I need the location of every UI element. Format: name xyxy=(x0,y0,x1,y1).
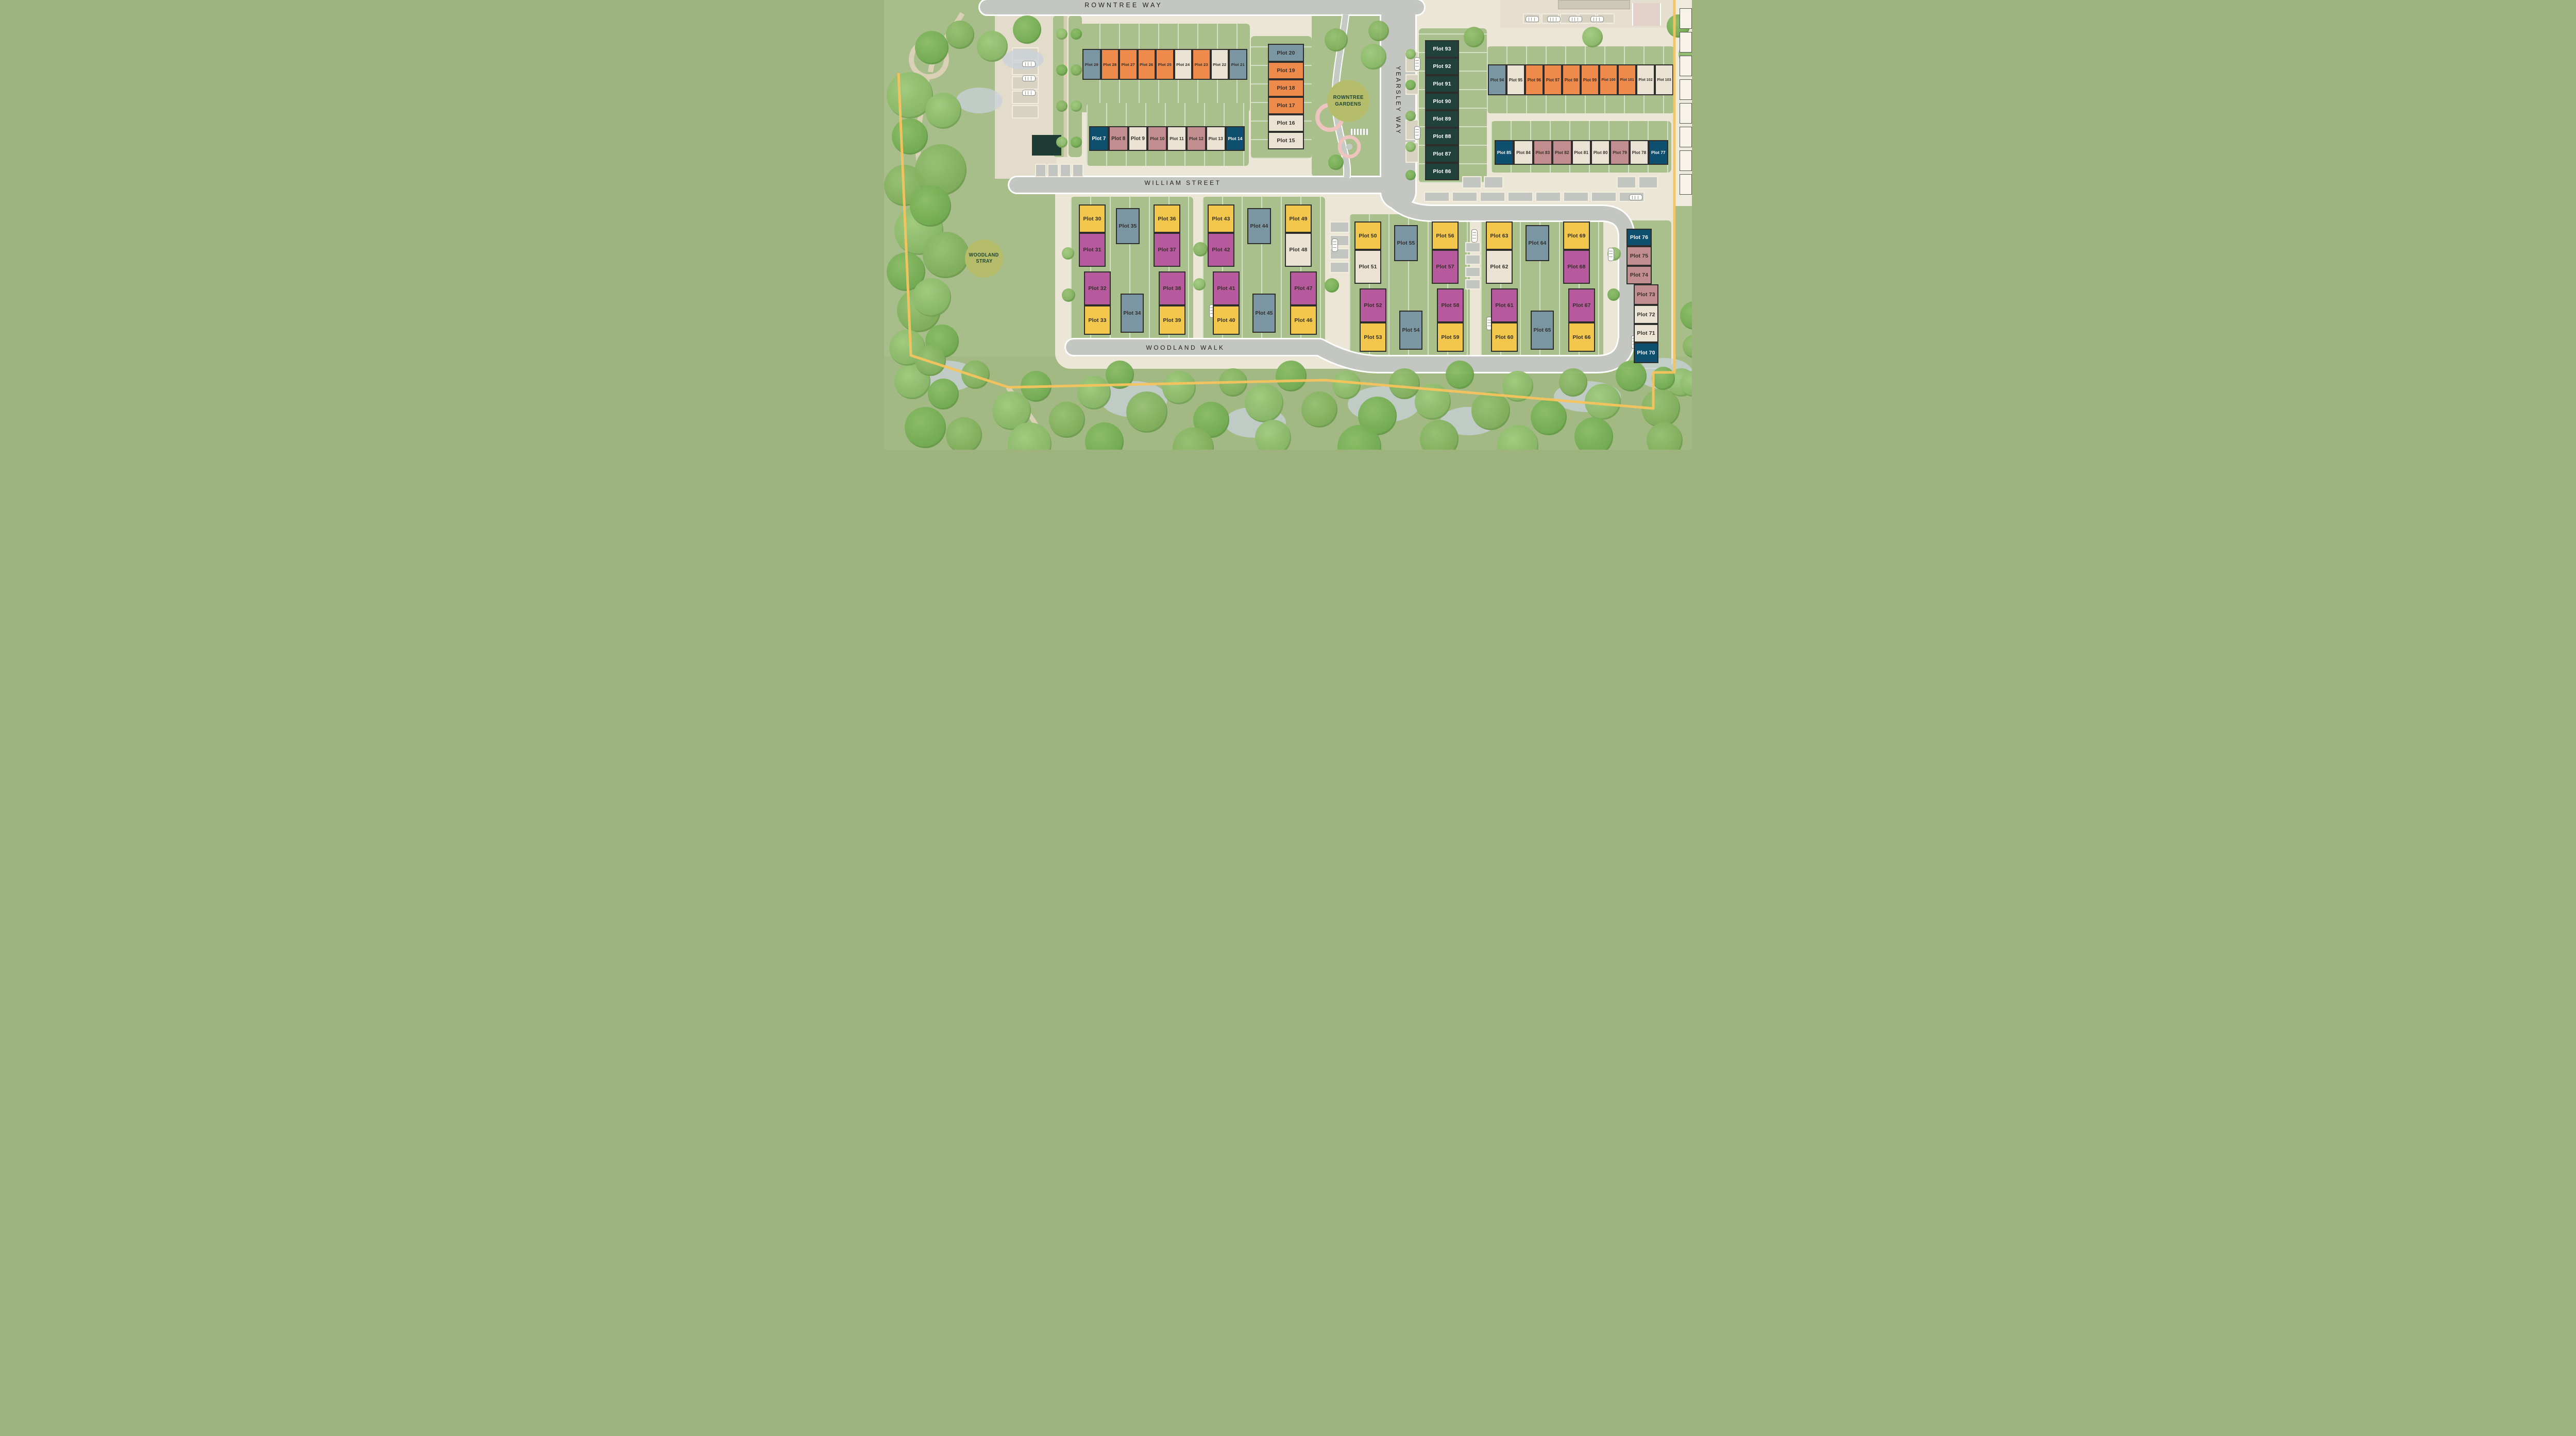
plot-15[interactable]: Plot 15 xyxy=(1268,132,1304,149)
plot-91[interactable]: Plot 91 xyxy=(1425,75,1459,93)
parking-stall xyxy=(1480,192,1505,202)
woodland-stray-badge: WOODLAND STRAY xyxy=(965,240,1003,278)
plot-54[interactable]: Plot 54 xyxy=(1399,311,1422,350)
plot-10[interactable]: Plot 10 xyxy=(1147,126,1167,151)
plot-73[interactable]: Plot 73 xyxy=(1634,284,1658,305)
plot-70-label: Plot 70 xyxy=(1637,350,1655,356)
car-icon xyxy=(1332,238,1338,252)
plot-28-label: Plot 28 xyxy=(1103,62,1116,67)
tree xyxy=(923,232,969,278)
offsite-house xyxy=(1680,150,1692,171)
tree xyxy=(925,93,961,129)
plot-78-label: Plot 78 xyxy=(1632,150,1647,155)
plot-34[interactable]: Plot 34 xyxy=(1121,294,1144,333)
plot-36[interactable]: Plot 36 xyxy=(1154,204,1180,233)
plot-42-label: Plot 42 xyxy=(1212,247,1230,253)
tree xyxy=(1013,15,1041,44)
plot-69-label: Plot 69 xyxy=(1567,233,1585,239)
plot-14[interactable]: Plot 14 xyxy=(1226,126,1245,151)
plot-16[interactable]: Plot 16 xyxy=(1268,114,1304,132)
street-label-william-street: WILLIAM STREET xyxy=(1116,179,1250,186)
tree xyxy=(1077,376,1111,409)
plot-37-label: Plot 37 xyxy=(1158,247,1176,253)
tree xyxy=(1405,170,1416,180)
car-icon xyxy=(1022,75,1036,81)
plot-76[interactable]: Plot 76 xyxy=(1626,229,1652,246)
plot-98-label: Plot 98 xyxy=(1565,78,1579,82)
tree xyxy=(1056,100,1067,112)
tree xyxy=(1056,28,1067,40)
plot-93[interactable]: Plot 93 xyxy=(1425,40,1459,58)
tree xyxy=(1071,28,1082,40)
tree xyxy=(1502,371,1533,402)
car-icon xyxy=(1022,61,1036,67)
plot-74-label: Plot 74 xyxy=(1630,272,1648,278)
car-icon xyxy=(1471,229,1478,243)
plot-44-label: Plot 44 xyxy=(1250,224,1268,229)
plot-25-label: Plot 25 xyxy=(1158,62,1172,67)
plot-80-label: Plot 80 xyxy=(1594,150,1608,155)
woodland-stray-label-line1: WOODLAND xyxy=(969,252,999,259)
plot-98[interactable]: Plot 98 xyxy=(1562,64,1581,95)
tree xyxy=(1301,391,1337,428)
plot-95[interactable]: Plot 95 xyxy=(1506,64,1525,95)
tree xyxy=(1405,80,1416,90)
plot-33-label: Plot 33 xyxy=(1088,317,1106,323)
tree xyxy=(1405,142,1416,152)
tree xyxy=(915,345,946,376)
parking-stall xyxy=(1563,192,1589,202)
plot-90-label: Plot 90 xyxy=(1433,98,1451,105)
plot-94-label: Plot 94 xyxy=(1490,78,1504,82)
plot-52[interactable]: Plot 52 xyxy=(1360,288,1386,322)
plot-79[interactable]: Plot 79 xyxy=(1610,140,1629,165)
tree xyxy=(1193,278,1206,290)
tree xyxy=(1328,155,1344,170)
tree xyxy=(1056,64,1067,76)
plot-96[interactable]: Plot 96 xyxy=(1525,64,1544,95)
car-icon xyxy=(1569,16,1582,22)
plot-32[interactable]: Plot 32 xyxy=(1084,271,1111,305)
plot-100-label: Plot 100 xyxy=(1601,78,1615,82)
plot-43[interactable]: Plot 43 xyxy=(1208,204,1234,233)
tree xyxy=(1652,367,1675,390)
parking-stall xyxy=(1330,262,1349,273)
tree xyxy=(977,31,1008,62)
plot-21[interactable]: Plot 21 xyxy=(1229,49,1247,80)
car-icon xyxy=(1414,126,1420,140)
plot-40[interactable]: Plot 40 xyxy=(1213,305,1240,335)
tree xyxy=(1056,136,1067,148)
plot-43-label: Plot 43 xyxy=(1212,216,1230,222)
plot-69[interactable]: Plot 69 xyxy=(1563,221,1590,250)
plot-97[interactable]: Plot 97 xyxy=(1544,64,1562,95)
plot-76-label: Plot 76 xyxy=(1630,234,1648,241)
plot-12[interactable]: Plot 12 xyxy=(1187,126,1206,151)
plot-66-label: Plot 66 xyxy=(1572,334,1590,340)
offsite-house xyxy=(1680,79,1692,100)
plot-101-label: Plot 101 xyxy=(1620,78,1634,82)
plot-67-label: Plot 67 xyxy=(1572,302,1590,309)
plot-29[interactable]: Plot 29 xyxy=(1082,49,1101,80)
rowntree-gardens-badge: ROWNTREE GARDENS xyxy=(1327,80,1369,122)
plot-82[interactable]: Plot 82 xyxy=(1552,140,1571,165)
plot-35[interactable]: Plot 35 xyxy=(1116,208,1140,244)
tree xyxy=(1126,391,1167,433)
plot-85-label: Plot 85 xyxy=(1497,150,1512,155)
plot-27-label: Plot 27 xyxy=(1122,62,1135,67)
tree xyxy=(1616,361,1647,391)
parking-stall xyxy=(1484,176,1503,189)
plot-72-label: Plot 72 xyxy=(1637,312,1655,318)
plot-12-label: Plot 12 xyxy=(1189,136,1204,141)
plot-48[interactable]: Plot 48 xyxy=(1285,233,1312,267)
plot-56[interactable]: Plot 56 xyxy=(1432,221,1459,250)
parking-stall xyxy=(1072,164,1083,177)
plot-102-label: Plot 102 xyxy=(1638,78,1652,82)
plot-75-label: Plot 75 xyxy=(1630,253,1648,259)
plot-13-label: Plot 13 xyxy=(1209,136,1223,141)
plot-103[interactable]: Plot 103 xyxy=(1655,64,1673,95)
tree xyxy=(1405,111,1416,121)
plot-35-label: Plot 35 xyxy=(1119,224,1137,229)
parking-stall xyxy=(1465,254,1481,265)
plot-23-label: Plot 23 xyxy=(1195,62,1208,67)
tree xyxy=(1446,361,1474,389)
car-icon xyxy=(1608,248,1614,261)
plot-95-label: Plot 95 xyxy=(1509,78,1523,82)
street-label-rowntree-way: ROWNTREE WAY xyxy=(1054,2,1193,9)
tree xyxy=(1368,21,1389,41)
parking-stall xyxy=(1330,221,1349,233)
plot-8-label: Plot 8 xyxy=(1111,136,1125,142)
plot-68-label: Plot 68 xyxy=(1567,264,1585,270)
tree xyxy=(1332,371,1361,399)
garage-block xyxy=(1632,3,1661,26)
plot-27[interactable]: Plot 27 xyxy=(1119,49,1138,80)
plot-50-label: Plot 50 xyxy=(1359,233,1377,239)
tree xyxy=(1245,384,1283,422)
plot-94[interactable]: Plot 94 xyxy=(1488,64,1506,95)
plot-18-label: Plot 18 xyxy=(1277,85,1295,91)
plot-46-label: Plot 46 xyxy=(1294,317,1312,323)
plot-52-label: Plot 52 xyxy=(1364,302,1382,309)
offsite-house xyxy=(1680,32,1692,53)
plot-71-label: Plot 71 xyxy=(1637,330,1655,336)
plot-64-label: Plot 64 xyxy=(1529,241,1547,246)
plot-99[interactable]: Plot 99 xyxy=(1581,64,1599,95)
tree xyxy=(1361,44,1386,70)
parking-stall xyxy=(1035,164,1046,177)
woodland-stray-label-line2: STRAY xyxy=(976,259,992,265)
offsite-house xyxy=(1680,56,1692,76)
plot-89[interactable]: Plot 89 xyxy=(1425,110,1459,128)
plot-89-label: Plot 89 xyxy=(1433,116,1451,122)
plot-11-label: Plot 11 xyxy=(1170,136,1184,141)
plot-37[interactable]: Plot 37 xyxy=(1154,233,1180,267)
plot-62[interactable]: Plot 62 xyxy=(1486,250,1513,284)
tree xyxy=(1219,368,1247,397)
plot-19[interactable]: Plot 19 xyxy=(1268,62,1304,79)
parking-stall xyxy=(1465,267,1481,277)
plot-26-label: Plot 26 xyxy=(1140,62,1153,67)
rowntree-gardens-label-line1: ROWNTREE xyxy=(1333,94,1363,101)
plot-92[interactable]: Plot 92 xyxy=(1425,58,1459,75)
plot-22-label: Plot 22 xyxy=(1213,62,1226,67)
parking-stall xyxy=(1465,242,1481,252)
plot-68[interactable]: Plot 68 xyxy=(1563,250,1590,284)
plot-51-label: Plot 51 xyxy=(1359,264,1377,270)
plot-67[interactable]: Plot 67 xyxy=(1568,288,1595,322)
car-icon xyxy=(1414,57,1420,71)
offsite-house xyxy=(1680,8,1692,29)
tree xyxy=(1162,371,1196,404)
plot-29-label: Plot 29 xyxy=(1085,62,1098,67)
plot-74[interactable]: Plot 74 xyxy=(1626,266,1652,284)
plot-86[interactable]: Plot 86 xyxy=(1425,163,1459,180)
car-icon xyxy=(1547,16,1561,22)
plot-97-label: Plot 97 xyxy=(1546,78,1560,82)
tree xyxy=(946,21,974,49)
plot-10-label: Plot 10 xyxy=(1150,136,1164,141)
plot-93-label: Plot 93 xyxy=(1433,46,1451,52)
tree xyxy=(1071,100,1082,112)
tree xyxy=(1062,288,1075,302)
plot-15-label: Plot 15 xyxy=(1277,138,1295,144)
tree xyxy=(892,118,928,155)
plot-47[interactable]: Plot 47 xyxy=(1290,271,1317,305)
tree xyxy=(1464,27,1484,47)
parking-stall xyxy=(1047,164,1059,177)
car-icon xyxy=(1022,90,1036,96)
plot-13[interactable]: Plot 13 xyxy=(1206,126,1226,151)
tree xyxy=(1582,27,1603,47)
plot-41[interactable]: Plot 41 xyxy=(1213,271,1240,305)
plot-24-label: Plot 24 xyxy=(1176,62,1190,67)
plot-47-label: Plot 47 xyxy=(1294,285,1312,292)
plot-65[interactable]: Plot 65 xyxy=(1531,311,1554,350)
street-label-yearsley-way: YEARSLEY WAY xyxy=(1395,66,1402,135)
site-plan-map: Plot 7Plot 8Plot 9Plot 10Plot 11Plot 12P… xyxy=(884,0,1692,450)
plot-87[interactable]: Plot 87 xyxy=(1425,145,1459,163)
parking-stall xyxy=(1462,176,1482,189)
plot-24[interactable]: Plot 24 xyxy=(1174,49,1193,80)
plot-7[interactable]: Plot 7 xyxy=(1089,126,1109,151)
tree xyxy=(1325,28,1348,52)
plot-103-label: Plot 103 xyxy=(1657,78,1671,82)
tree xyxy=(1071,136,1082,148)
plot-96-label: Plot 96 xyxy=(1528,78,1541,82)
plot-58[interactable]: Plot 58 xyxy=(1437,288,1464,322)
plot-30[interactable]: Plot 30 xyxy=(1079,204,1106,233)
parking-stall xyxy=(1638,176,1658,189)
tree xyxy=(1276,361,1307,391)
plot-85[interactable]: Plot 85 xyxy=(1495,140,1514,165)
plot-19-label: Plot 19 xyxy=(1277,67,1295,74)
plot-84[interactable]: Plot 84 xyxy=(1514,140,1533,165)
plot-57[interactable]: Plot 57 xyxy=(1432,250,1459,284)
plot-22[interactable]: Plot 22 xyxy=(1211,49,1229,80)
plot-79-label: Plot 79 xyxy=(1613,150,1627,155)
plot-92-label: Plot 92 xyxy=(1433,63,1451,70)
tree xyxy=(1471,391,1510,430)
plot-49[interactable]: Plot 49 xyxy=(1285,204,1312,233)
plot-26[interactable]: Plot 26 xyxy=(1138,49,1156,80)
plot-38[interactable]: Plot 38 xyxy=(1159,271,1185,305)
plot-59[interactable]: Plot 59 xyxy=(1437,322,1464,352)
plot-51[interactable]: Plot 51 xyxy=(1354,250,1381,284)
plot-21-label: Plot 21 xyxy=(1231,62,1245,67)
tree xyxy=(1585,384,1621,420)
plot-83[interactable]: Plot 83 xyxy=(1533,140,1552,165)
plot-61[interactable]: Plot 61 xyxy=(1491,288,1518,322)
plot-38-label: Plot 38 xyxy=(1163,285,1181,292)
plot-71[interactable]: Plot 71 xyxy=(1634,324,1658,343)
tree xyxy=(1559,368,1587,397)
plot-48-label: Plot 48 xyxy=(1289,247,1307,253)
plot-44[interactable]: Plot 44 xyxy=(1247,208,1271,244)
tree xyxy=(905,407,946,448)
plot-81-label: Plot 81 xyxy=(1574,150,1588,155)
plot-20-label: Plot 20 xyxy=(1277,50,1295,56)
plot-82-label: Plot 82 xyxy=(1555,150,1569,155)
plot-53-label: Plot 53 xyxy=(1364,334,1382,340)
parking-stall xyxy=(1507,192,1533,202)
rowntree-gardens-label-line2: GARDENS xyxy=(1335,101,1362,108)
parking-stall xyxy=(1591,192,1617,202)
tree xyxy=(961,361,990,389)
plot-28[interactable]: Plot 28 xyxy=(1101,49,1120,80)
plot-14-label: Plot 14 xyxy=(1228,136,1242,141)
existing-building xyxy=(1558,0,1630,9)
parking-stall xyxy=(1535,192,1561,202)
plot-60[interactable]: Plot 60 xyxy=(1491,322,1518,352)
plot-99-label: Plot 99 xyxy=(1583,78,1597,82)
plot-45[interactable]: Plot 45 xyxy=(1252,294,1276,333)
plot-100[interactable]: Plot 100 xyxy=(1599,64,1618,95)
plot-11[interactable]: Plot 11 xyxy=(1167,126,1187,151)
plot-20[interactable]: Plot 20 xyxy=(1268,44,1304,62)
tree xyxy=(1071,64,1082,76)
parking-stall xyxy=(1060,164,1071,177)
plot-45-label: Plot 45 xyxy=(1255,311,1273,316)
plot-55[interactable]: Plot 55 xyxy=(1394,225,1418,261)
plot-63[interactable]: Plot 63 xyxy=(1486,221,1513,250)
plot-23[interactable]: Plot 23 xyxy=(1192,49,1211,80)
plot-42[interactable]: Plot 42 xyxy=(1208,233,1234,267)
plot-25[interactable]: Plot 25 xyxy=(1156,49,1174,80)
plot-90[interactable]: Plot 90 xyxy=(1425,93,1459,110)
tree xyxy=(1062,247,1074,260)
plot-30-label: Plot 30 xyxy=(1083,216,1101,222)
plot-102[interactable]: Plot 102 xyxy=(1636,64,1655,95)
plot-73-label: Plot 73 xyxy=(1637,292,1655,298)
plot-70[interactable]: Plot 70 xyxy=(1634,343,1658,363)
offsite-house xyxy=(1680,103,1692,124)
plot-56-label: Plot 56 xyxy=(1436,233,1454,239)
plot-60-label: Plot 60 xyxy=(1495,334,1513,340)
plot-55-label: Plot 55 xyxy=(1397,241,1415,246)
plot-88[interactable]: Plot 88 xyxy=(1425,128,1459,145)
tree xyxy=(1607,288,1620,301)
plot-78[interactable]: Plot 78 xyxy=(1630,140,1649,165)
street-label-woodland-walk: WOODLAND WALK xyxy=(1118,344,1252,351)
plot-62-label: Plot 62 xyxy=(1490,264,1508,270)
plot-9-label: Plot 9 xyxy=(1131,136,1145,142)
plot-64[interactable]: Plot 64 xyxy=(1526,225,1549,261)
plot-31[interactable]: Plot 31 xyxy=(1079,233,1106,267)
tree xyxy=(1021,371,1052,402)
plot-49-label: Plot 49 xyxy=(1289,216,1307,222)
plot-72[interactable]: Plot 72 xyxy=(1634,305,1658,324)
plot-8[interactable]: Plot 8 xyxy=(1109,126,1128,151)
tree xyxy=(912,278,951,317)
plot-36-label: Plot 36 xyxy=(1158,216,1176,222)
tree xyxy=(1531,399,1567,435)
plot-59-label: Plot 59 xyxy=(1441,334,1459,340)
plot-7-label: Plot 7 xyxy=(1092,136,1106,142)
plot-53[interactable]: Plot 53 xyxy=(1360,322,1386,352)
plot-39-label: Plot 39 xyxy=(1163,317,1181,323)
plot-101[interactable]: Plot 101 xyxy=(1618,64,1636,95)
plot-34-label: Plot 34 xyxy=(1123,311,1141,316)
plot-41-label: Plot 41 xyxy=(1217,285,1235,292)
plot-81[interactable]: Plot 81 xyxy=(1572,140,1591,165)
tree xyxy=(915,31,948,64)
plot-46[interactable]: Plot 46 xyxy=(1290,305,1317,335)
plot-32-label: Plot 32 xyxy=(1088,285,1106,292)
plot-66[interactable]: Plot 66 xyxy=(1568,322,1595,352)
shrub-patch xyxy=(956,88,1003,113)
plot-18[interactable]: Plot 18 xyxy=(1268,79,1304,97)
plot-50[interactable]: Plot 50 xyxy=(1354,221,1381,250)
plot-54-label: Plot 54 xyxy=(1402,328,1419,333)
plot-77[interactable]: Plot 77 xyxy=(1649,140,1668,165)
plot-9[interactable]: Plot 9 xyxy=(1128,126,1148,151)
plot-87-label: Plot 87 xyxy=(1433,151,1451,157)
plot-57-label: Plot 57 xyxy=(1436,264,1454,270)
plot-83-label: Plot 83 xyxy=(1536,150,1550,155)
parking-stall xyxy=(1012,105,1039,118)
tree xyxy=(910,185,951,227)
car-icon xyxy=(1629,194,1642,200)
tree xyxy=(1389,368,1420,399)
car-icon xyxy=(1526,16,1539,22)
plot-80[interactable]: Plot 80 xyxy=(1591,140,1610,165)
plot-88-label: Plot 88 xyxy=(1433,133,1451,140)
plot-84-label: Plot 84 xyxy=(1516,150,1531,155)
plot-33[interactable]: Plot 33 xyxy=(1084,305,1111,335)
plot-58-label: Plot 58 xyxy=(1441,302,1459,309)
offsite-house xyxy=(1680,127,1692,147)
plot-77-label: Plot 77 xyxy=(1651,150,1666,155)
plot-31-label: Plot 31 xyxy=(1083,247,1101,253)
parking-stall xyxy=(1465,279,1481,289)
tree xyxy=(946,417,982,450)
plot-61-label: Plot 61 xyxy=(1495,302,1513,309)
plot-75[interactable]: Plot 75 xyxy=(1626,246,1652,266)
tree xyxy=(928,379,959,409)
plot-16-label: Plot 16 xyxy=(1277,120,1295,126)
offsite-house xyxy=(1680,174,1692,195)
car-icon xyxy=(1590,16,1604,22)
plot-17[interactable]: Plot 17 xyxy=(1268,97,1304,114)
plot-63-label: Plot 63 xyxy=(1490,233,1508,239)
plot-39[interactable]: Plot 39 xyxy=(1159,305,1185,335)
parking-stall xyxy=(1424,192,1450,202)
tree xyxy=(1193,242,1208,257)
plot-91-label: Plot 91 xyxy=(1433,81,1451,87)
